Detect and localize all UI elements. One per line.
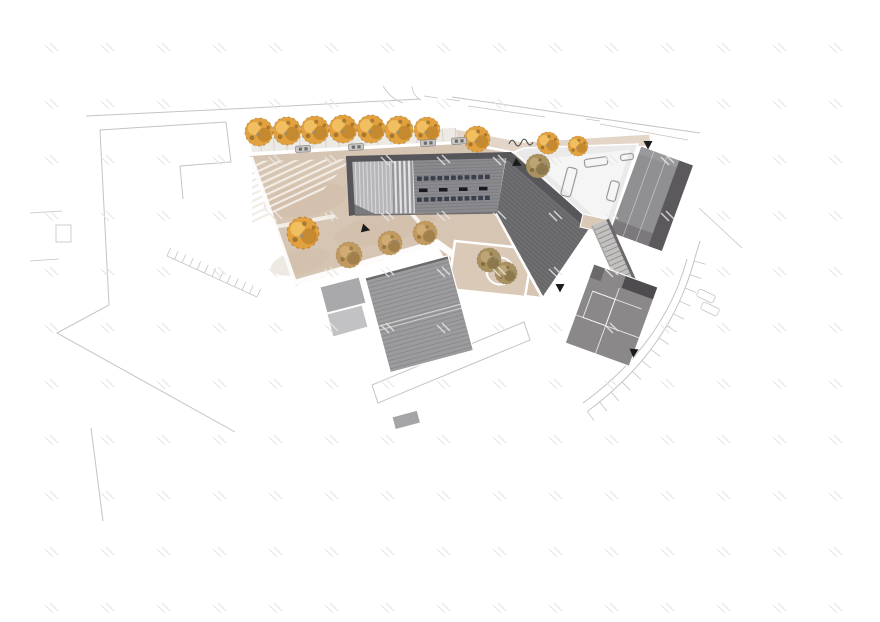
watermark-mark (157, 435, 170, 445)
watermark-mark (829, 491, 842, 501)
orange-tree (329, 115, 357, 143)
skylight (478, 175, 483, 179)
lower-right-building-roof (565, 264, 658, 366)
skylight (465, 175, 470, 179)
watermark-mark (45, 435, 58, 445)
watermark-mark (101, 547, 114, 557)
street-edge-left (86, 99, 420, 116)
watermark-mark (549, 547, 562, 557)
parking-bay-outline (696, 289, 716, 304)
watermark-mark (717, 267, 730, 277)
watermark-mark (269, 603, 282, 613)
existing-building (320, 256, 473, 430)
watermark-mark (101, 211, 114, 221)
watermark-mark (493, 603, 506, 613)
parking-stall-tick (611, 392, 619, 401)
watermark-mark (493, 435, 506, 445)
watermark-mark (717, 603, 730, 613)
parking-stall-tick (659, 338, 669, 345)
watermark-mark (381, 547, 394, 557)
watermark-mark (661, 43, 674, 53)
watermark-mark (269, 547, 282, 557)
watermark-mark (661, 267, 674, 277)
parked-car (420, 139, 435, 146)
watermark-mark (829, 603, 842, 613)
watermark-mark (829, 267, 842, 277)
watermark-mark (157, 99, 170, 109)
watermark-mark (101, 491, 114, 501)
watermark-mark (717, 155, 730, 165)
site-plan-drawing (0, 0, 880, 622)
skylight-roof-ribs (413, 154, 506, 213)
watermark-mark (269, 99, 282, 109)
skylight (459, 187, 468, 191)
watermark-mark (45, 323, 58, 333)
parking-stall-tick (694, 261, 706, 264)
watermark-mark (829, 155, 842, 165)
watermark-mark (829, 435, 842, 445)
watermark-mark (213, 43, 226, 53)
skylight (485, 175, 490, 179)
skylight (485, 196, 490, 200)
watermark-mark (605, 99, 618, 109)
watermark-mark (717, 43, 730, 53)
watermark-mark (213, 211, 226, 221)
watermark-mark (549, 435, 562, 445)
parking-stall-tick (250, 285, 254, 293)
orange-tree (537, 132, 559, 154)
watermark-mark (101, 603, 114, 613)
watermark-mark (605, 547, 618, 557)
watermark-mark (45, 43, 58, 53)
skylight (458, 196, 463, 200)
watermark-mark (773, 155, 786, 165)
watermark-mark (717, 99, 730, 109)
parcel-small-square (56, 225, 71, 242)
orange-tree (245, 118, 273, 146)
watermark-mark (101, 155, 114, 165)
watermark-mark (773, 211, 786, 221)
skylight (465, 196, 470, 200)
watermark-mark (549, 379, 562, 389)
watermark-mark (45, 603, 58, 613)
skylight (458, 175, 463, 179)
watermark-mark (717, 491, 730, 501)
orange-tree (301, 116, 329, 144)
watermark-mark (45, 379, 58, 389)
orange-tree (414, 117, 440, 143)
watermark-mark (437, 99, 450, 109)
watermark-mark (605, 491, 618, 501)
watermark-mark (829, 211, 842, 221)
brown-tree (526, 154, 550, 178)
watermark-mark (45, 99, 58, 109)
parking-stall-tick (622, 382, 630, 391)
watermark-mark (493, 491, 506, 501)
watermark-mark (549, 323, 562, 333)
watermark-mark (829, 323, 842, 333)
watermark-mark (605, 603, 618, 613)
parking-stall-tick (227, 275, 231, 283)
skylight (451, 197, 456, 201)
entrance-arrow-marker (556, 284, 565, 293)
parking-stall-tick (642, 360, 651, 368)
watermark-mark (717, 379, 730, 389)
watermark-mark (437, 603, 450, 613)
watermark-mark (717, 547, 730, 557)
watermark-mark (157, 43, 170, 53)
parking-stalls-left (167, 248, 261, 297)
watermark-mark (157, 155, 170, 165)
watermark-mark (325, 491, 338, 501)
watermark-mark (213, 491, 226, 501)
orange-tree (385, 116, 413, 144)
watermark-mark (717, 323, 730, 333)
watermark-mark (605, 43, 618, 53)
street-edge-right-lower (468, 106, 688, 140)
watermark-mark (773, 43, 786, 53)
parking-stall-tick (242, 282, 246, 290)
brown-tree (495, 262, 517, 284)
skylight (424, 176, 429, 180)
skylight (437, 197, 442, 201)
watermark-mark (45, 547, 58, 557)
watermark-mark (773, 267, 786, 277)
watermark-mark (213, 99, 226, 109)
watermark-mark (325, 603, 338, 613)
watermark-mark (157, 267, 170, 277)
skylight (479, 187, 488, 191)
parking-stall-tick (190, 258, 194, 266)
skylight (417, 198, 422, 202)
skylight (417, 177, 422, 181)
watermark-mark (549, 43, 562, 53)
watermark-mark (213, 267, 226, 277)
skylight (439, 188, 448, 192)
watermark-mark (493, 43, 506, 53)
watermark-mark (269, 435, 282, 445)
skylight (471, 196, 476, 200)
parked-car (348, 143, 363, 150)
watermark-mark (381, 43, 394, 53)
watermark-mark (213, 379, 226, 389)
watermark-mark (661, 99, 674, 109)
skylight (451, 176, 456, 180)
skylight (431, 197, 436, 201)
parking-stall-tick (235, 279, 239, 287)
parking-bay-outline (700, 302, 720, 317)
watermark-mark (45, 211, 58, 221)
watermark-mark (157, 211, 170, 221)
watermark-mark (773, 603, 786, 613)
parking-stall-tick (690, 275, 701, 279)
parcel-outline-left (57, 122, 235, 521)
watermark-mark (381, 435, 394, 445)
watermark-mark (717, 211, 730, 221)
watermark-mark (661, 435, 674, 445)
watermark-mark (157, 603, 170, 613)
roof-louver-strips (391, 158, 415, 214)
watermark-mark (829, 43, 842, 53)
watermark-mark (213, 603, 226, 613)
parking-stall-tick (599, 402, 607, 411)
watermark-mark (381, 491, 394, 501)
skylight (444, 176, 449, 180)
watermark-mark (437, 491, 450, 501)
watermark-mark (157, 547, 170, 557)
parking-stall-tick (205, 265, 209, 273)
watermark-mark (101, 99, 114, 109)
parking-stall-tick (587, 411, 594, 421)
orange-tree (464, 126, 490, 152)
site-plan-canvas (0, 0, 880, 622)
watermark-mark (717, 435, 730, 445)
watermark-mark (325, 379, 338, 389)
watermark-mark (437, 43, 450, 53)
parking-stall-tick (679, 301, 690, 306)
watermark-mark (549, 491, 562, 501)
watermark-mark (269, 491, 282, 501)
lane-dashes (424, 96, 600, 121)
orange-tree (568, 136, 588, 156)
skylight (478, 196, 483, 200)
watermark-mark (661, 491, 674, 501)
small-outbuilding-roof (392, 410, 420, 429)
parking-stall-tick (257, 289, 261, 297)
parking-stall-tick (685, 288, 696, 292)
orange-tree (287, 217, 319, 249)
watermark-mark (101, 379, 114, 389)
skylight (444, 197, 449, 201)
watermark-mark (213, 323, 226, 333)
watermark-mark (325, 43, 338, 53)
watermark-mark (213, 435, 226, 445)
watermark-mark (773, 547, 786, 557)
parking-stall-tick (182, 255, 186, 263)
skylight (424, 197, 429, 201)
skylight (437, 176, 442, 180)
watermark-mark (773, 323, 786, 333)
watermark-mark (437, 435, 450, 445)
watermark-mark (493, 323, 506, 333)
watermark-mark (773, 491, 786, 501)
watermark-mark (773, 435, 786, 445)
parking-stall-tick (632, 371, 641, 379)
skylight (431, 176, 436, 180)
watermark-mark (493, 379, 506, 389)
watermark-mark (549, 603, 562, 613)
tan-tree (413, 221, 437, 245)
watermark-mark (269, 379, 282, 389)
watermark-mark (45, 155, 58, 165)
orange-tree (357, 115, 385, 143)
watermark-mark (381, 603, 394, 613)
skylight (471, 175, 476, 179)
tan-tree (378, 231, 402, 255)
watermark-mark (213, 547, 226, 557)
watermark-mark (45, 267, 58, 277)
watermark-mark (437, 547, 450, 557)
orange-tree (273, 117, 301, 145)
watermark-mark (605, 435, 618, 445)
watermark-mark (773, 379, 786, 389)
parcel-line-right (699, 208, 742, 248)
watermark-mark (829, 547, 842, 557)
tan-tree (336, 242, 362, 268)
watermark-mark (101, 43, 114, 53)
watermark-mark (101, 435, 114, 445)
watermark-mark (325, 435, 338, 445)
watermark-mark (157, 323, 170, 333)
watermark-mark (325, 547, 338, 557)
watermark-mark (45, 491, 58, 501)
parking-stall-tick (197, 261, 201, 269)
watermark-mark (829, 379, 842, 389)
watermark-mark (269, 43, 282, 53)
watermark-mark (437, 379, 450, 389)
watermark-mark (829, 99, 842, 109)
watermark-mark (773, 99, 786, 109)
watermark-mark (269, 323, 282, 333)
watermark-mark (101, 323, 114, 333)
parked-car (451, 137, 466, 144)
parking-stall-tick (651, 349, 661, 356)
watermark-mark (661, 603, 674, 613)
watermark-mark (661, 547, 674, 557)
watermark-mark (661, 379, 674, 389)
watermark-mark (157, 491, 170, 501)
skylight (419, 189, 428, 193)
parking-stall-tick (167, 248, 171, 256)
watermark-mark (493, 547, 506, 557)
parked-car (295, 145, 310, 152)
watermark-mark (157, 379, 170, 389)
watermark-mark (549, 99, 562, 109)
parking-stall-tick (673, 314, 684, 320)
parking-stall-tick (175, 251, 179, 259)
